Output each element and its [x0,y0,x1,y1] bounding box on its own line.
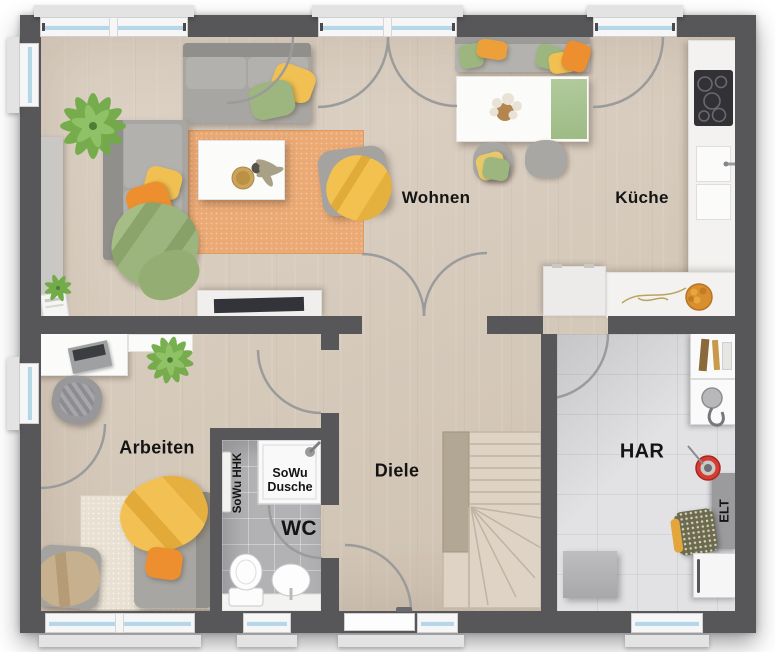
washing-machine [693,553,737,598]
window-sill [625,635,709,647]
dining-chair [525,140,567,178]
window-sill [7,37,19,113]
window-glazing [247,621,287,626]
kitchen-island-cabinet [543,266,606,316]
dining-table [456,76,589,142]
window-sill [39,635,201,647]
room-label-wohnen: Wohnen [402,188,471,208]
wall-diele-arbeiten-stub [321,334,339,350]
kitchen-sink-basin [696,146,731,182]
window-handle [672,23,675,31]
floorplan-canvas: Wohnen Küche Arbeiten Diele WC HAR SoWu … [0,0,775,652]
pillow-orange [144,546,184,582]
window-mullion [109,17,118,37]
utility-shelf [690,333,737,425]
wall-diele-bath-lower [321,558,339,611]
label-sowu-dusche: SoWu Dusche [261,466,319,494]
sofa-cushion [186,57,246,89]
window-handle [320,23,323,31]
room-label-arbeiten: Arbeiten [119,438,194,459]
window-sill [587,5,683,17]
room-label-har: HAR [620,441,664,464]
spray-bottle [722,342,732,370]
window-sill [34,5,194,17]
front-door-leaf [344,613,415,631]
window-glazing [27,47,32,103]
tv [214,297,304,313]
window-sill [237,635,297,647]
label-elt: ELT [717,499,732,523]
room-label-diele: Diele [375,461,420,482]
wall-diele-bath [321,413,339,505]
window-sill [7,357,19,430]
room-label-kueche: Küche [615,188,668,208]
tv-sideboard [197,290,322,317]
storage-box [563,551,617,598]
wall-mid-center [487,316,543,334]
kitchen-counter-bottom [606,272,736,318]
wall-exterior-right [735,15,756,633]
chair-cloth-green [481,156,510,182]
window-handle [42,23,45,31]
tool [712,340,720,370]
front-door-handle [396,607,412,612]
wall-bath-top [210,428,321,440]
desk-extension [128,334,193,352]
window-handle [452,23,455,31]
window-glazing [635,621,699,626]
wall-bath-left [210,428,222,611]
room-label-wc: WC [281,517,317,541]
wall-mid-left [41,316,362,334]
window-mullion [383,17,392,37]
tool [699,339,710,372]
window-handle [183,23,186,31]
kitchen-sink-basin [696,184,731,220]
window-sill [312,5,463,17]
coffee-table [198,140,285,200]
wall-exterior-left [20,15,41,633]
wall-diele-har [541,334,557,611]
laundry-bag [673,507,719,556]
window-mullion [115,613,124,633]
washing-machine-handle [697,559,700,593]
window-handle [595,23,598,31]
sofa-backrest [183,43,311,57]
cooktop [694,70,733,126]
wall-mid-right [608,316,735,334]
window-glazing [421,621,454,626]
table-runner [551,79,587,139]
window-glazing [27,367,32,420]
entrance-step [338,635,464,647]
label-sowu-hhk: SoWu HHK [232,453,244,513]
window-glazing [597,25,673,30]
